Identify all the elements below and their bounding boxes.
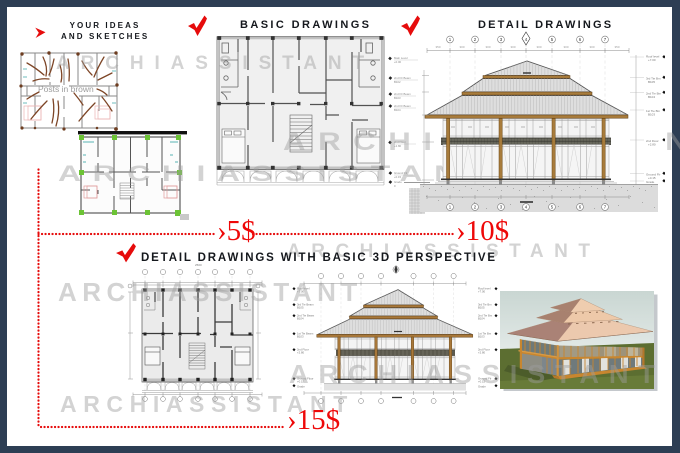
svg-text:+7.00: +7.00 xyxy=(648,58,656,62)
svg-text:B103: B103 xyxy=(648,113,655,117)
svg-text:350: 350 xyxy=(614,45,619,49)
svg-text:+2.80: +2.80 xyxy=(648,143,656,147)
svg-text:300: 300 xyxy=(536,45,541,49)
svg-text:350: 350 xyxy=(435,45,440,49)
svg-text:B104: B104 xyxy=(648,95,655,99)
svg-text:Grade: Grade xyxy=(646,180,655,184)
svg-text:300: 300 xyxy=(485,45,490,49)
svg-text:B105: B105 xyxy=(648,80,655,84)
svg-text:300: 300 xyxy=(510,45,515,49)
svg-text:300: 300 xyxy=(589,45,594,49)
svg-text:300: 300 xyxy=(563,45,568,49)
svg-text:300: 300 xyxy=(459,45,464,49)
